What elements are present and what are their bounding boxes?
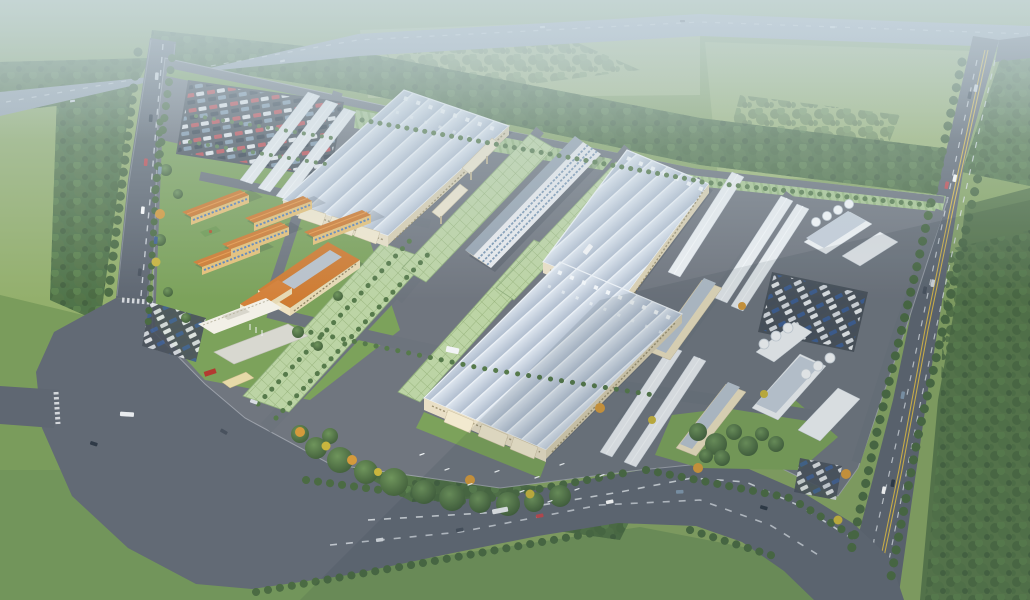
scene-canvas: Aerial bird's-eye architectural renderin…: [0, 0, 1030, 600]
aerial-industrial-park-rendering: Aerial bird's-eye architectural renderin…: [0, 0, 1030, 600]
west-branch-road: [0, 386, 60, 428]
atmospheric-haze-top: [0, 0, 1030, 140]
